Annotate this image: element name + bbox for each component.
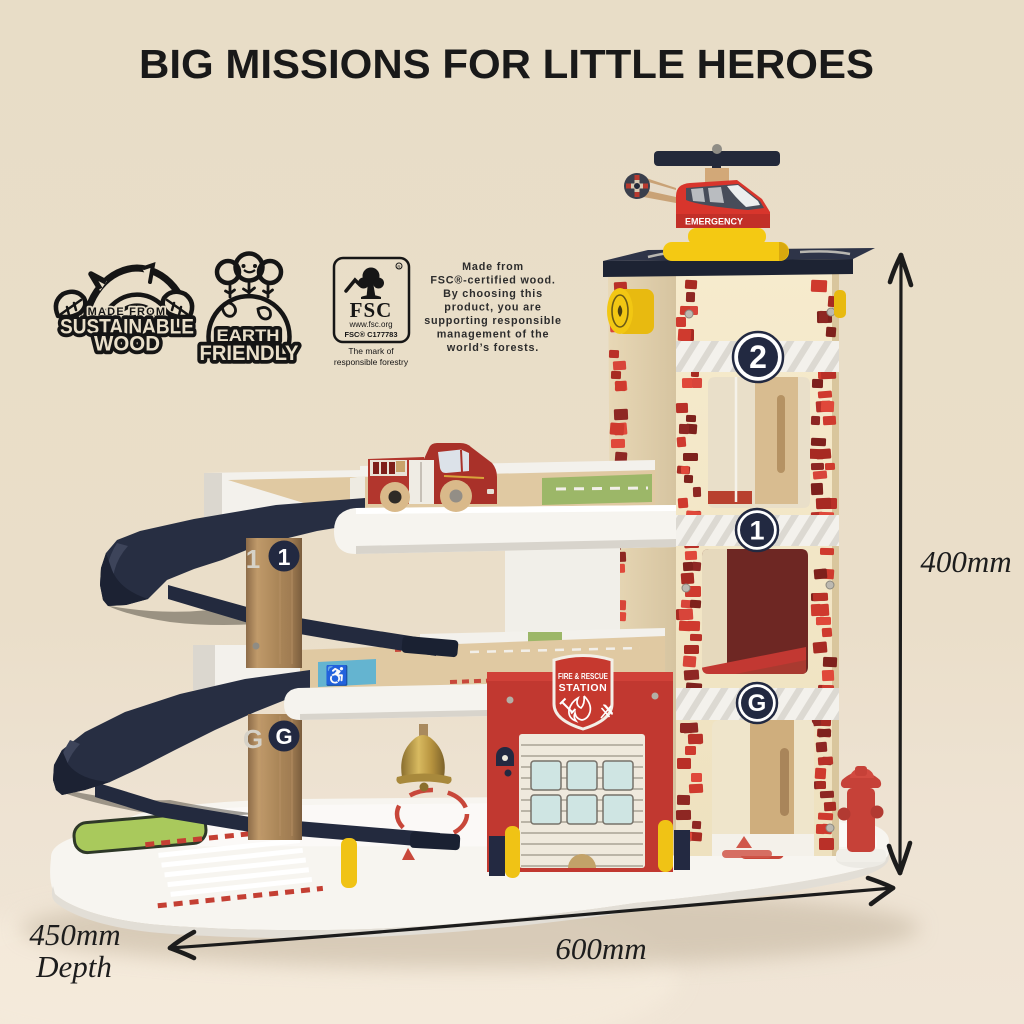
- svg-text:By choosing this: By choosing this: [443, 288, 543, 300]
- svg-text:600mm: 600mm: [555, 931, 646, 966]
- svg-text:1: 1: [246, 544, 260, 574]
- svg-text:FRIENDLY: FRIENDLY: [200, 341, 299, 365]
- svg-text:450mm: 450mm: [29, 917, 120, 952]
- svg-text:♿: ♿: [325, 664, 349, 687]
- svg-text:product, you are: product, you are: [444, 302, 541, 314]
- svg-text:1: 1: [749, 516, 764, 546]
- svg-text:2: 2: [749, 339, 767, 375]
- svg-text:400mm: 400mm: [920, 544, 1011, 579]
- svg-text:BIG MISSIONS FOR LITTLE HEROES: BIG MISSIONS FOR LITTLE HEROES: [139, 41, 874, 87]
- svg-text:STATION: STATION: [559, 682, 608, 694]
- svg-text:FSC: FSC: [350, 298, 393, 322]
- svg-text:Made from: Made from: [462, 261, 524, 273]
- svg-text:EMERGENCY: EMERGENCY: [685, 217, 744, 228]
- svg-text:management of the: management of the: [437, 329, 550, 341]
- svg-text:G: G: [243, 724, 263, 754]
- svg-text:G: G: [748, 690, 767, 717]
- svg-text:G: G: [275, 724, 292, 749]
- svg-text:supporting responsible: supporting responsible: [424, 315, 562, 327]
- svg-text:world’s forests.: world’s forests.: [446, 342, 539, 354]
- svg-text:FSC® C177783: FSC® C177783: [344, 330, 397, 339]
- svg-text:FSC®-certified wood.: FSC®-certified wood.: [430, 275, 555, 287]
- svg-text:The mark of: The mark of: [348, 346, 394, 356]
- svg-text:1: 1: [278, 544, 291, 570]
- svg-text:WOOD: WOOD: [94, 332, 160, 356]
- svg-text:www.fsc.org: www.fsc.org: [348, 320, 392, 329]
- svg-text:Depth: Depth: [35, 949, 112, 984]
- svg-text:responsible forestry: responsible forestry: [334, 357, 409, 367]
- svg-text:FIRE & RESCUE: FIRE & RESCUE: [558, 672, 609, 681]
